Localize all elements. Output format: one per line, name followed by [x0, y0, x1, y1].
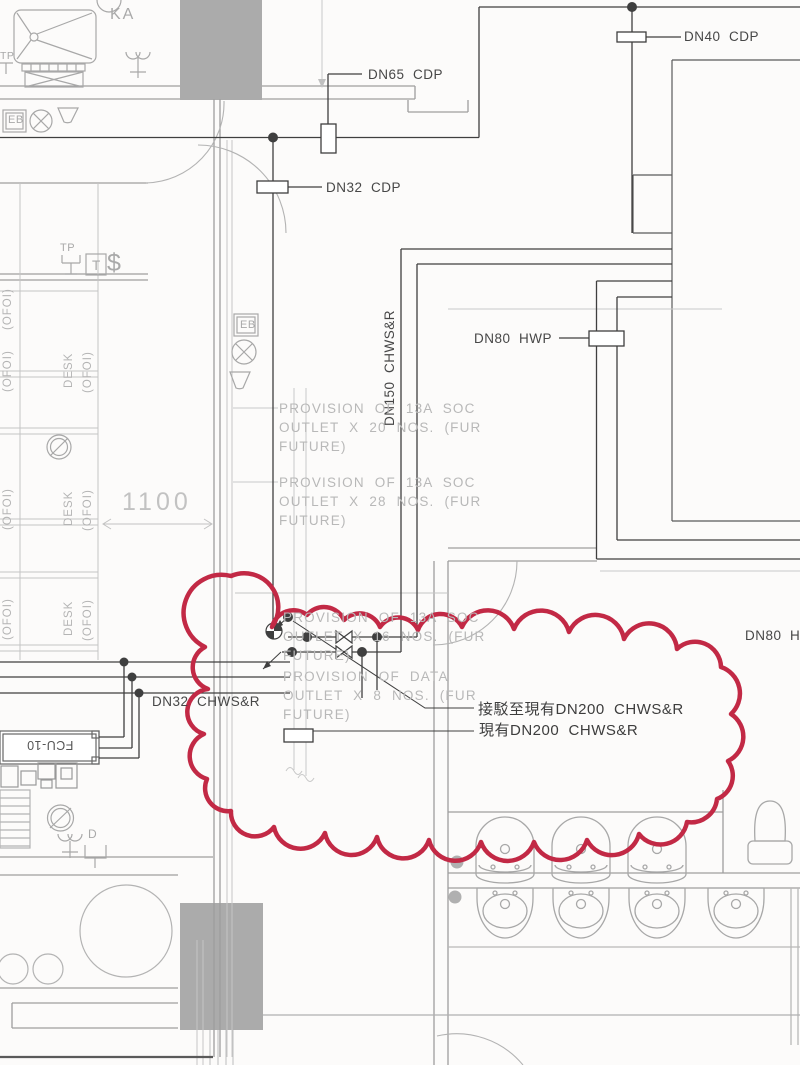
tp-bracket-icon — [62, 255, 80, 274]
eb-label: EB — [8, 114, 24, 126]
ahu-unit — [14, 0, 121, 87]
bottom-left-furniture — [0, 790, 172, 984]
fcu-tag: FCU-10 — [12, 738, 88, 752]
note-data-outlet-8: PROVISION OF DATA OUTLET X 8 NOS. (FUR F… — [283, 667, 477, 724]
desk-label: DESK — [63, 491, 75, 526]
tp-bracket-icon — [0, 63, 13, 74]
junction-dot — [135, 689, 144, 698]
note-soc-outlet-20: PROVISION OF 13A SOC OUTLET X 20 NOS. (F… — [279, 399, 481, 456]
room-label-ka: KA — [110, 6, 135, 24]
sprinkler-icon — [58, 834, 82, 858]
pipe-sleeve-icon — [589, 331, 624, 346]
note-existing-dn200: 現有DN200 CHWS&R — [479, 719, 638, 740]
tp-label: TP — [0, 50, 14, 62]
desk-ofoi-label: (OFOI) — [2, 488, 14, 530]
desk-ofoi-label: (OFOI) — [2, 350, 14, 392]
pipe-sleeve-icon — [321, 124, 336, 153]
chair — [33, 954, 63, 984]
pipe-label-dn80-h: DN80 H — [745, 628, 800, 643]
chair — [0, 954, 28, 984]
pipe-sleeve-icon — [257, 181, 288, 193]
floor-plan-drawing: KA TP EB DN40 CDP DN65 CDP DN32 CDP DN15… — [0, 0, 800, 1065]
dimension-1100: 1100 — [122, 488, 192, 517]
sink — [477, 888, 533, 938]
pipe-label-dn32-chwsr: DN32 CHWS&R — [152, 694, 260, 709]
dimension-line — [103, 519, 212, 529]
note-soc-outlet-28: PROVISION OF 13A SOC OUTLET X 28 NOS. (F… — [279, 473, 481, 530]
desk-ofoi-label: (OFOI) — [82, 489, 94, 531]
note-connect-existing-dn200: 接駁至現有DN200 CHWS&R — [478, 698, 684, 719]
junction-dot — [268, 133, 278, 143]
desk-ofoi-label: (OFOI) — [2, 598, 14, 640]
junction-dot — [627, 2, 637, 12]
pipe-label-dn80-hwp: DN80 HWP — [474, 331, 552, 346]
junction-dot — [128, 673, 137, 682]
desk-ofoi-label: (OFOI) — [2, 288, 14, 330]
horn-icon — [58, 108, 78, 123]
pipe-label-dn32-cdp: DN32 CDP — [326, 180, 401, 195]
desk-label: DESK — [63, 601, 75, 636]
thermostat-label: T — [92, 258, 101, 273]
note-soc-outlet-16: PROVISION OF 13A SOC OUTLET X 16 NOS. (F… — [283, 608, 485, 665]
right-rooms — [633, 60, 800, 521]
sanitary-fixtures — [449, 801, 793, 938]
horn-icon — [230, 372, 250, 389]
pipe-sleeve-icon — [617, 32, 646, 42]
floor-drain-icon — [449, 891, 462, 904]
pipe-label-dn65-cdp: DN65 CDP — [368, 67, 443, 82]
tp-label: TP — [60, 242, 75, 254]
eb-label: EB — [240, 319, 256, 331]
walls — [0, 86, 800, 1065]
stairs — [0, 790, 30, 848]
desk-ofoi-label: (OFOI) — [82, 599, 94, 641]
sink — [553, 888, 609, 938]
sprinkler-icon — [126, 52, 150, 78]
switch-symbol-label: $ — [107, 249, 121, 278]
table — [80, 885, 172, 977]
d-label: D — [88, 827, 97, 841]
structural-columns — [180, 0, 263, 1030]
cad-linework — [0, 0, 800, 1065]
desk-ofoi-label: (OFOI) — [82, 351, 94, 393]
toilet — [748, 801, 792, 864]
pipe-label-dn40-cdp: DN40 CDP — [684, 29, 759, 44]
sink — [708, 888, 764, 938]
pipe-sleeve-icon — [284, 729, 313, 742]
junction-dot — [120, 658, 129, 667]
sink — [629, 888, 685, 938]
desk-label: DESK — [63, 353, 75, 388]
